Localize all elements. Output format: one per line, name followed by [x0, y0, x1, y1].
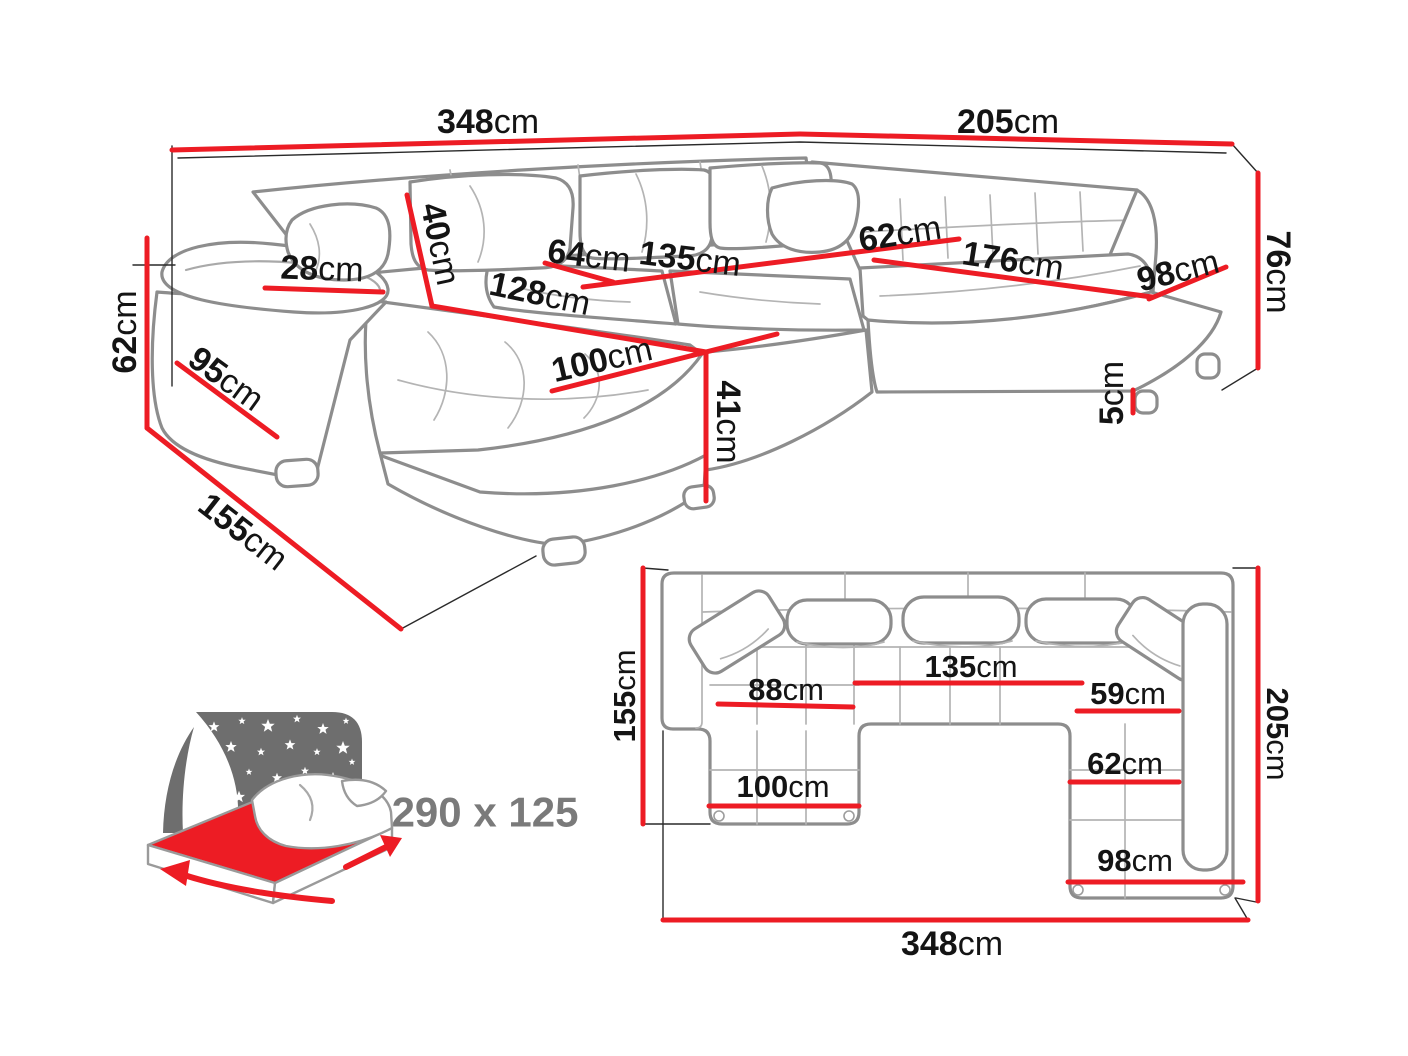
- top-label-right-section-width: 98cm: [1097, 843, 1173, 878]
- top-label-chaise-depth: 155cm: [607, 649, 642, 742]
- dim-label-seat-height: 41cm: [709, 380, 747, 463]
- bed-size-text: 290 x 125: [392, 789, 579, 836]
- dim-label-back-height: 76cm: [1259, 230, 1297, 313]
- top-label-right-seat-lower-depth: 62cm: [1087, 746, 1163, 781]
- pillow-corner: [768, 181, 859, 253]
- sofa-left-foot: [275, 459, 319, 488]
- top-label-right-section-depth: 205cm: [1261, 687, 1296, 780]
- sofa-chaise-foot-right: [683, 484, 716, 510]
- sofa-right-foot: [1135, 391, 1157, 413]
- dim-label-leg-height: 5cm: [1093, 361, 1131, 425]
- top-label-chaise-width: 100cm: [736, 769, 829, 804]
- top-label-left-seat-width: 88cm: [748, 672, 824, 707]
- sleeping-function-icon: 290 x 125: [148, 712, 578, 903]
- top-back-cushions: [787, 597, 1136, 648]
- sofa-chaise-foot: [542, 536, 586, 566]
- sofa-right-arm-foot: [1197, 354, 1219, 378]
- dim-label-total-width: 348cm: [437, 103, 539, 141]
- headboard-sliver: [163, 727, 194, 833]
- top-label-middle-seat-width: 135cm: [924, 649, 1017, 684]
- diagram-canvas: 348cm 205cm 76cm 62cm 155cm 95cm 28cm 40…: [0, 0, 1408, 1056]
- dim-label-arm-height: 62cm: [106, 290, 144, 373]
- perspective-view: 348cm 205cm 76cm 62cm 155cm 95cm 28cm 40…: [106, 103, 1297, 629]
- top-right-backrest-cushion: [1183, 604, 1227, 870]
- sofa-chaise-base: [380, 453, 706, 545]
- sofa-dimension-diagram-page: 348cm 205cm 76cm 62cm 155cm 95cm 28cm 40…: [0, 0, 1408, 1056]
- dim-label-arm-width: 28cm: [280, 249, 364, 290]
- top-view: 155cm 205cm 88cm 135cm 59cm 62cm 100cm 9…: [607, 568, 1296, 963]
- top-label-total-width: 348cm: [901, 925, 1003, 963]
- top-label-right-seat-upper-depth: 59cm: [1090, 676, 1166, 711]
- dim-label-right-side-width: 205cm: [957, 103, 1059, 141]
- sofa-perspective-drawing: [152, 158, 1221, 566]
